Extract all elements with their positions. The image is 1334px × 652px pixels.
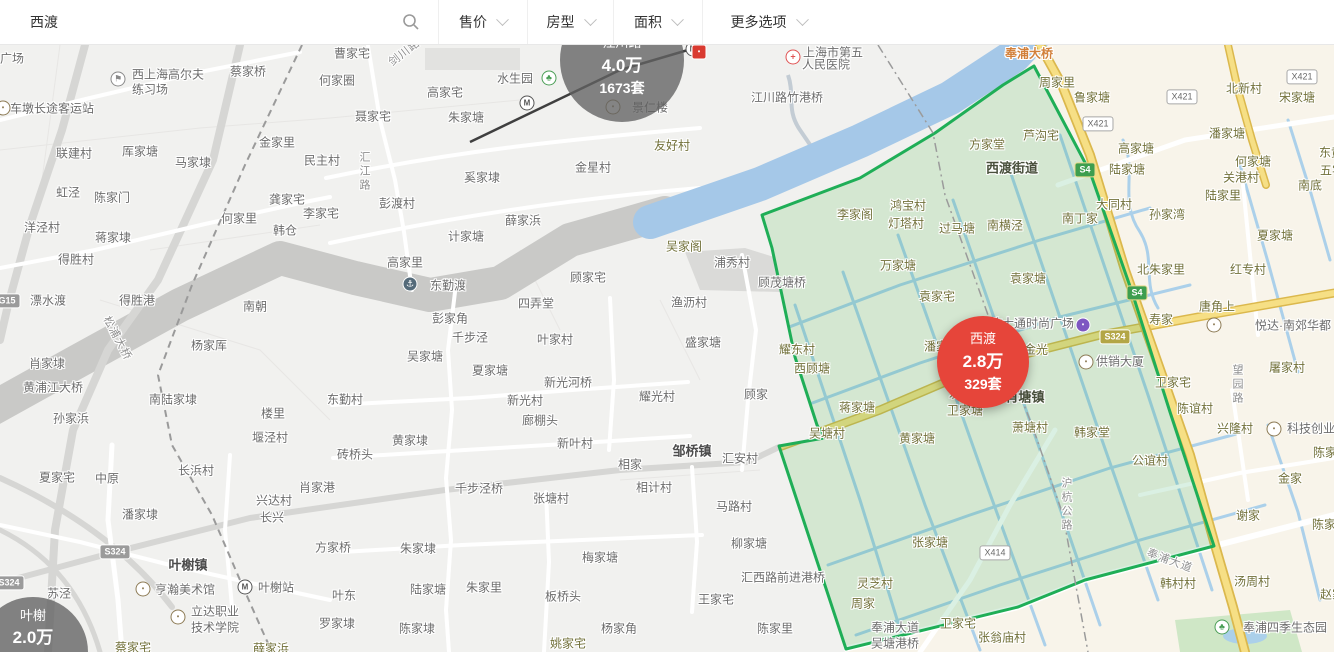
park-icon: ♣: [1215, 620, 1230, 635]
road-badge: X421: [1286, 69, 1317, 84]
road-badge: S4: [1126, 285, 1147, 300]
marker-region-name: 西渡: [970, 329, 996, 349]
filter-label: 面积: [634, 12, 662, 32]
road-badge: S4: [1074, 162, 1095, 177]
school-icon: ▪: [171, 610, 186, 625]
filter-label: 更多选项: [731, 12, 787, 32]
road-badge: X421: [1082, 116, 1113, 131]
chevron-down-icon: [496, 13, 509, 26]
filter-area[interactable]: 面积: [613, 0, 702, 44]
road-badge: X421: [1166, 89, 1197, 104]
ferry-icon: ⚓: [403, 277, 418, 292]
marker-price: 2.0万: [13, 625, 54, 651]
filter-label: 售价: [459, 12, 487, 32]
marker-price: 2.8万: [963, 349, 1004, 375]
search-box[interactable]: [0, 0, 438, 44]
road-badge: S324: [1099, 329, 1130, 344]
chevron-down-icon: [796, 13, 809, 26]
marker-listing-count: 1673套: [599, 78, 644, 99]
building-icon: ▪: [1207, 318, 1222, 333]
museum-icon: ▪: [136, 582, 151, 597]
search-icon[interactable]: [402, 13, 420, 31]
filter-label: 房型: [547, 12, 575, 32]
building-icon: ▪: [1267, 422, 1282, 437]
map-canvas[interactable]: 广场西上海高尔夫练习场车墩长途客运站蔡家桥何家圈曹家宅剑川路金家里民主村联建村厍…: [0, 0, 1334, 652]
search-input[interactable]: [28, 13, 402, 31]
filter-bar: 售价房型面积更多选项: [438, 0, 834, 44]
red-poi-icon: ▪: [692, 45, 707, 60]
toolbar: 售价房型面积更多选项: [0, 0, 1334, 45]
road-badge: S324: [0, 575, 25, 590]
region-marker-xidu[interactable]: 西渡2.8万329套: [937, 316, 1029, 408]
road-badge: G15: [0, 293, 21, 308]
marker-region-name: 叶榭: [20, 606, 46, 626]
golf-icon: ⚑: [111, 72, 126, 87]
filter-price[interactable]: 售价: [438, 0, 527, 44]
metro-icon: M: [520, 96, 535, 111]
metro-icon: M: [238, 580, 253, 595]
hospital-icon: +: [786, 50, 801, 65]
chevron-down-icon: [671, 13, 684, 26]
marker-price: 4.0万: [602, 53, 643, 79]
road-badge: S324: [99, 544, 130, 559]
filter-more[interactable]: 更多选项: [702, 0, 834, 44]
road-badge: X414: [979, 545, 1010, 560]
marker-listing-count: 329套: [964, 374, 1001, 395]
plant-icon: ♣: [542, 71, 557, 86]
shopping-icon: ▪: [1076, 318, 1091, 333]
filter-layout[interactable]: 房型: [527, 0, 613, 44]
chevron-down-icon: [584, 13, 597, 26]
building-icon: ▪: [1079, 355, 1094, 370]
